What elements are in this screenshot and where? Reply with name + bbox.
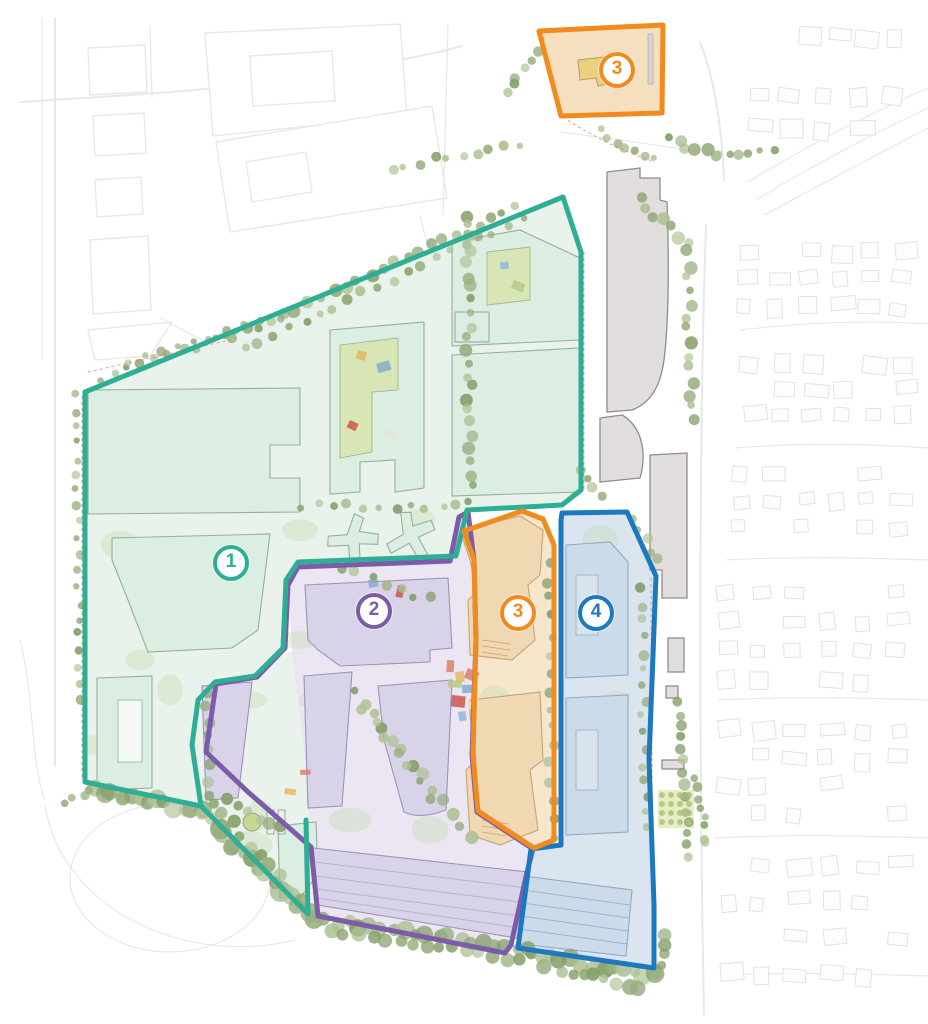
house-outline	[896, 379, 919, 394]
house-outline	[894, 406, 911, 424]
tree-icon	[375, 505, 382, 512]
tree-icon	[442, 155, 449, 162]
event-hall-building	[607, 168, 668, 412]
house-outline	[736, 299, 750, 314]
tree-icon	[398, 584, 407, 593]
tree-icon	[687, 401, 695, 409]
house-outline	[719, 641, 738, 655]
house-outline	[784, 616, 805, 628]
house-outline	[889, 522, 908, 537]
house-outline	[832, 271, 848, 287]
house-outline	[828, 492, 845, 511]
tree-icon	[658, 928, 672, 942]
tree-icon	[215, 807, 227, 819]
tree-icon	[373, 718, 382, 727]
house-outline	[799, 492, 816, 506]
tree-icon	[683, 829, 691, 837]
house-outline	[830, 295, 856, 310]
foliage-patch	[328, 808, 371, 832]
house-outline	[817, 749, 832, 765]
tree-icon	[678, 778, 690, 790]
tree-icon	[191, 338, 197, 344]
house-outline	[748, 118, 774, 133]
tree-icon	[396, 935, 408, 947]
tree-icon	[72, 409, 80, 417]
tree-icon	[204, 791, 214, 801]
landscape-accent	[446, 660, 454, 672]
tree-icon	[420, 505, 428, 513]
house-outline	[834, 407, 850, 422]
tree-icon	[467, 380, 477, 390]
tree-icon	[727, 151, 735, 159]
tree-icon	[351, 687, 359, 695]
orchard-tree-icon	[686, 819, 692, 825]
tree-icon	[467, 323, 477, 333]
residential-blocks	[715, 26, 918, 987]
house-outline	[829, 28, 852, 42]
tree-icon	[602, 134, 610, 142]
tree-icon	[402, 761, 411, 770]
house-outline	[801, 408, 821, 422]
house-outline	[784, 929, 808, 942]
tree-icon	[690, 774, 698, 782]
map-canvas	[0, 0, 928, 1024]
site-plan-map: 1 2 3 4 3	[0, 0, 928, 1024]
house-outline	[720, 962, 744, 981]
zone-3-north-badge[interactable]: 3	[599, 52, 635, 88]
house-outline	[763, 495, 781, 509]
tree-icon	[378, 934, 392, 948]
tree-icon	[648, 212, 658, 222]
foliage-patch	[411, 816, 448, 844]
tree-icon	[447, 808, 460, 821]
tree-icon	[416, 160, 426, 170]
tree-icon	[642, 808, 649, 815]
tree-icon	[416, 777, 423, 784]
tree-icon	[68, 794, 76, 802]
tree-icon	[408, 502, 415, 509]
tree-icon	[569, 970, 579, 980]
tree-icon	[692, 782, 702, 792]
tree-icon	[638, 603, 648, 613]
tree-icon	[473, 149, 483, 159]
tree-icon	[587, 482, 598, 493]
tree-icon	[327, 305, 336, 314]
zone-3-badge[interactable]: 3	[500, 595, 536, 631]
house-outline	[856, 861, 879, 874]
tree-icon	[666, 221, 676, 231]
tree-icon	[643, 533, 653, 543]
house-outline	[893, 358, 912, 374]
tree-icon	[684, 853, 693, 862]
tree-icon	[630, 981, 646, 997]
tree-icon	[685, 336, 698, 349]
tree-icon	[697, 804, 705, 812]
tree-icon	[501, 953, 515, 967]
orchard-tree-icon	[686, 810, 692, 816]
tree-icon	[528, 57, 536, 65]
tree-icon	[462, 442, 475, 455]
house-outline	[866, 408, 881, 420]
tree-icon	[304, 318, 312, 326]
tree-icon	[243, 807, 253, 817]
tree-icon	[74, 458, 81, 465]
orchard-tree-icon	[668, 810, 674, 816]
landscape-accent	[458, 711, 467, 722]
tree-icon	[356, 704, 367, 715]
house-outline	[850, 120, 875, 135]
tree-icon	[142, 352, 148, 358]
tree-icon	[390, 277, 400, 287]
tree-icon	[544, 592, 552, 600]
zone-1-badge[interactable]: 1	[213, 545, 249, 581]
tree-icon	[252, 338, 263, 349]
tree-icon	[441, 504, 448, 511]
tree-icon	[450, 500, 460, 510]
tree-icon	[228, 815, 241, 828]
tree-icon	[200, 701, 211, 712]
house-outline	[731, 466, 747, 483]
tree-icon	[651, 155, 657, 161]
tree-icon	[404, 267, 413, 276]
tree-icon	[637, 614, 646, 623]
house-outline	[855, 724, 872, 741]
orchard-tree-icon	[659, 801, 665, 807]
tree-icon	[683, 361, 693, 371]
house-outline	[853, 643, 872, 659]
house-outline	[780, 119, 803, 138]
tree-icon	[464, 220, 472, 228]
tree-icon	[462, 332, 471, 341]
zone-4-badge[interactable]: 4	[578, 595, 614, 631]
tree-icon	[466, 471, 477, 482]
tree-icon	[665, 133, 673, 141]
orchard-tree-icon	[659, 810, 665, 816]
house-outline	[749, 897, 764, 912]
house-outline	[716, 777, 741, 795]
house-outline	[799, 26, 822, 45]
house-outline	[774, 381, 795, 397]
tree-icon	[686, 300, 698, 312]
tree-icon	[465, 245, 477, 257]
tree-icon	[370, 709, 379, 718]
tree-icon	[497, 209, 505, 217]
tree-icon	[483, 145, 493, 155]
house-outline	[783, 969, 807, 983]
orchard-tree-icon	[677, 792, 683, 798]
house-outline	[783, 724, 805, 736]
house-outline	[820, 965, 844, 981]
tree-icon	[677, 768, 687, 778]
tree-icon	[639, 650, 650, 661]
house-outline	[855, 616, 869, 631]
orchard-tree-icon	[677, 801, 683, 807]
tree-icon	[337, 929, 349, 941]
house-outline	[740, 245, 759, 260]
house-outline	[803, 354, 824, 374]
tree-icon	[675, 744, 686, 755]
house-outline	[799, 269, 819, 285]
tree-icon	[487, 231, 494, 238]
tree-icon	[701, 821, 709, 829]
tree-icon	[285, 323, 292, 330]
tree-icon	[74, 664, 82, 672]
tree-icon	[505, 222, 513, 230]
tree-icon	[202, 776, 214, 788]
tree-icon	[71, 390, 79, 398]
house-outline	[794, 519, 809, 533]
tree-icon	[341, 499, 351, 509]
house-outline	[887, 612, 910, 626]
zone-2-label: 2	[369, 599, 380, 621]
tree-icon	[342, 294, 353, 305]
tree-icon	[370, 573, 378, 581]
house-outline	[752, 720, 776, 741]
tree-icon	[378, 733, 388, 743]
foliage-patch	[282, 519, 318, 541]
house-outline	[891, 269, 911, 284]
tree-icon	[277, 315, 285, 323]
landscape-accent	[448, 680, 462, 688]
house-outline	[753, 586, 771, 600]
tree-icon	[610, 977, 623, 990]
house-outline	[750, 645, 764, 657]
tree-icon	[462, 404, 472, 414]
house-outline	[888, 749, 908, 764]
house-outline	[885, 642, 905, 658]
tree-icon	[72, 485, 79, 492]
tree-icon	[242, 344, 250, 352]
house-outline	[823, 891, 840, 910]
house-outline	[718, 611, 740, 630]
house-outline	[822, 641, 836, 656]
tree-icon	[639, 728, 646, 735]
tree-icon	[680, 244, 692, 256]
house-outline	[861, 242, 878, 258]
tree-icon	[486, 212, 496, 222]
house-outline	[892, 724, 907, 739]
house-outline	[888, 585, 904, 598]
house-outline	[788, 890, 811, 904]
tree-icon	[635, 582, 645, 592]
house-outline	[731, 519, 745, 531]
house-outline	[748, 778, 766, 796]
tree-icon	[499, 141, 509, 151]
tree-icon	[702, 813, 709, 820]
tree-icon	[426, 592, 436, 602]
house-outline	[881, 86, 903, 106]
house-outline	[786, 858, 813, 878]
tree-icon	[316, 500, 324, 508]
orchard-tree-icon	[677, 810, 683, 816]
tree-icon	[431, 152, 441, 162]
house-outline	[813, 122, 830, 141]
house-outline	[888, 855, 913, 867]
tree-icon	[427, 786, 437, 796]
house-outline	[832, 246, 854, 264]
tree-icon	[584, 475, 591, 482]
house-outline	[715, 584, 734, 601]
tree-icon	[657, 961, 666, 970]
tree-icon	[513, 953, 526, 966]
tree-icon	[466, 294, 474, 302]
tree-icon	[688, 377, 700, 389]
house-outline	[717, 669, 736, 689]
house-outline	[744, 404, 768, 421]
tree-icon	[715, 150, 722, 157]
tree-icon	[733, 150, 743, 160]
tree-icon	[641, 152, 650, 161]
house-outline	[833, 381, 852, 399]
tree-icon	[399, 164, 406, 171]
house-outline	[819, 612, 836, 631]
tree-icon	[586, 967, 599, 980]
house-outline	[815, 88, 831, 105]
tree-icon	[686, 287, 694, 295]
zone-3-label: 3	[513, 601, 524, 623]
landscape-accent	[451, 695, 466, 708]
tree-icon	[459, 344, 472, 357]
tree-icon	[466, 456, 475, 465]
tree-icon	[460, 152, 468, 160]
tree-icon	[598, 492, 607, 501]
house-outline	[887, 932, 908, 946]
tree-icon	[676, 720, 687, 731]
tree-icon	[542, 578, 553, 589]
house-outline	[854, 30, 879, 50]
orchard-tree-icon	[668, 792, 674, 798]
tree-icon	[415, 261, 425, 271]
tree-icon	[409, 594, 416, 601]
house-outline	[733, 496, 750, 510]
tree-icon	[503, 88, 512, 97]
tree-icon	[464, 415, 475, 426]
tree-icon	[394, 748, 404, 758]
tree-icon	[437, 794, 449, 806]
tree-icon	[536, 959, 551, 974]
tree-icon	[73, 535, 79, 541]
tree-icon	[599, 974, 608, 983]
tree-icon	[639, 775, 648, 784]
house-outline	[786, 808, 801, 824]
tree-icon	[74, 437, 80, 443]
tree-icon	[467, 309, 475, 317]
tree-icon	[672, 231, 685, 244]
tree-icon	[688, 143, 701, 156]
landscape-accent	[462, 685, 473, 693]
house-outline	[772, 409, 789, 422]
house-outline	[802, 243, 820, 257]
tree-icon	[355, 286, 365, 296]
orchard-tree-icon	[668, 819, 674, 825]
house-outline	[862, 355, 888, 375]
orchard-tree-icon	[686, 801, 692, 807]
house-outline	[753, 748, 769, 760]
house-outline	[853, 675, 869, 693]
zone-3-north-label: 3	[612, 58, 623, 80]
tree-icon	[598, 125, 605, 132]
house-outline	[739, 356, 759, 374]
house-outline	[804, 383, 829, 398]
house-outline	[750, 672, 768, 690]
tree-icon	[330, 502, 338, 510]
tree-icon	[641, 632, 648, 639]
house-outline	[855, 754, 870, 772]
tree-icon	[638, 681, 645, 688]
tree-icon	[556, 966, 568, 978]
tree-icon	[426, 794, 436, 804]
house-outline	[887, 806, 907, 821]
house-outline	[784, 587, 803, 599]
tree-icon	[297, 505, 304, 512]
tree-icon	[464, 279, 477, 292]
house-outline	[849, 87, 867, 107]
tree-icon	[465, 831, 478, 844]
zone-2-badge[interactable]: 2	[356, 593, 392, 629]
tree-icon	[421, 940, 434, 953]
house-outline	[819, 672, 843, 689]
house-outline	[820, 855, 839, 876]
tree-icon	[455, 822, 464, 831]
tree-icon	[682, 272, 690, 280]
parking-structure-east	[520, 876, 632, 956]
orchard-tree-icon	[668, 801, 674, 807]
house-outline	[718, 719, 741, 738]
tree-icon	[73, 628, 81, 636]
house-outline	[784, 643, 801, 658]
house-outline	[895, 242, 919, 261]
house-outline	[767, 299, 783, 319]
tree-icon	[510, 73, 520, 83]
tree-icon	[71, 471, 80, 480]
tree-icon	[676, 732, 685, 741]
tree-icon	[447, 247, 454, 254]
tree-icon	[756, 147, 762, 153]
tree-icon	[689, 414, 700, 425]
house-outline	[857, 466, 882, 481]
house-outline	[799, 296, 817, 313]
tree-icon	[61, 800, 69, 808]
house-outline	[751, 805, 765, 820]
tree-icon	[175, 343, 181, 349]
tree-icon	[317, 311, 324, 318]
house-outline	[823, 928, 847, 946]
tree-icon	[233, 801, 243, 811]
tree-icon	[694, 795, 703, 804]
tree-icon	[640, 665, 646, 671]
tree-icon	[465, 360, 473, 368]
orchard-tree-icon	[686, 792, 692, 798]
tree-icon	[359, 505, 367, 513]
house-outline	[721, 895, 737, 913]
tree-icon	[676, 712, 685, 721]
house-outline	[857, 520, 873, 534]
orchard-tree-icon	[659, 792, 665, 798]
tree-icon	[521, 63, 530, 72]
tree-icon	[517, 143, 523, 149]
house-outline	[777, 87, 799, 103]
tree-icon	[701, 839, 709, 847]
tree-icon	[637, 711, 644, 718]
tree-icon	[73, 422, 80, 429]
zone-4-label: 4	[591, 601, 602, 623]
tree-icon	[678, 754, 688, 764]
house-outline	[775, 354, 790, 373]
tree-icon	[389, 165, 399, 175]
tree-icon	[652, 553, 662, 563]
tree-icon	[511, 202, 519, 210]
tree-icon	[744, 149, 753, 158]
